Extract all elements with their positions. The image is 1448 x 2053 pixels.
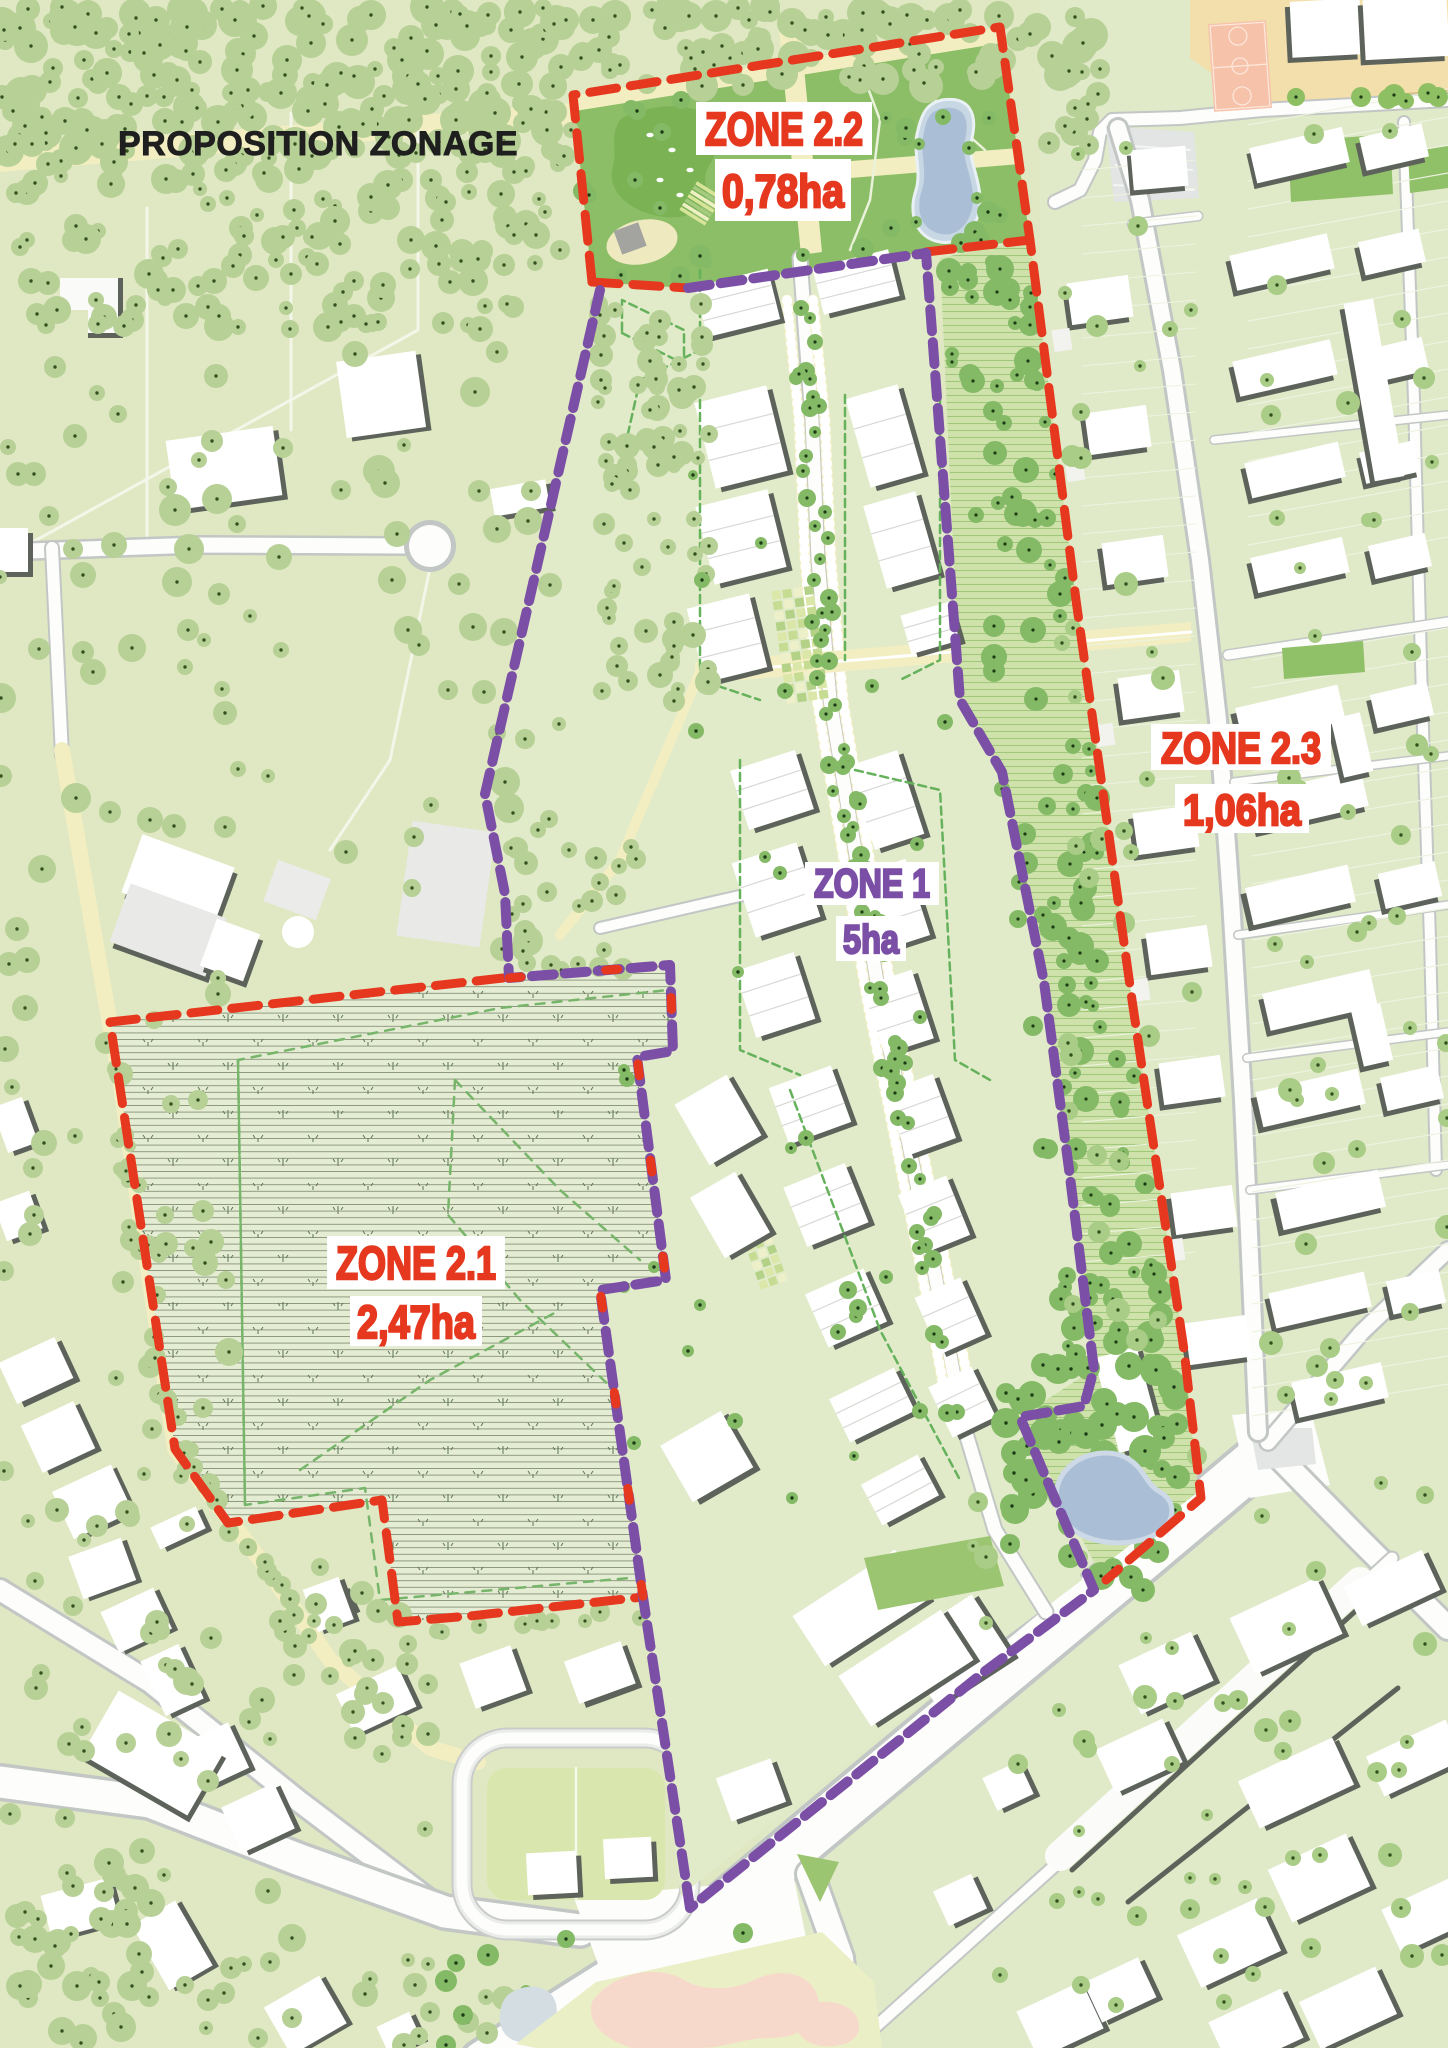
- svg-text:ZONE 2.1: ZONE 2.1: [336, 1237, 496, 1289]
- svg-text:1,06ha: 1,06ha: [1183, 786, 1301, 835]
- svg-text:5ha: 5ha: [843, 918, 900, 962]
- svg-text:0,78ha: 0,78ha: [722, 165, 844, 217]
- svg-text:ZONE 2.2: ZONE 2.2: [705, 103, 863, 155]
- svg-text:ZONE 2.3: ZONE 2.3: [1161, 724, 1321, 773]
- svg-text:2,47ha: 2,47ha: [357, 1296, 475, 1348]
- svg-text:PROPOSITION ZONAGE: PROPOSITION ZONAGE: [118, 125, 518, 163]
- svg-text:ZONE 1: ZONE 1: [814, 862, 930, 906]
